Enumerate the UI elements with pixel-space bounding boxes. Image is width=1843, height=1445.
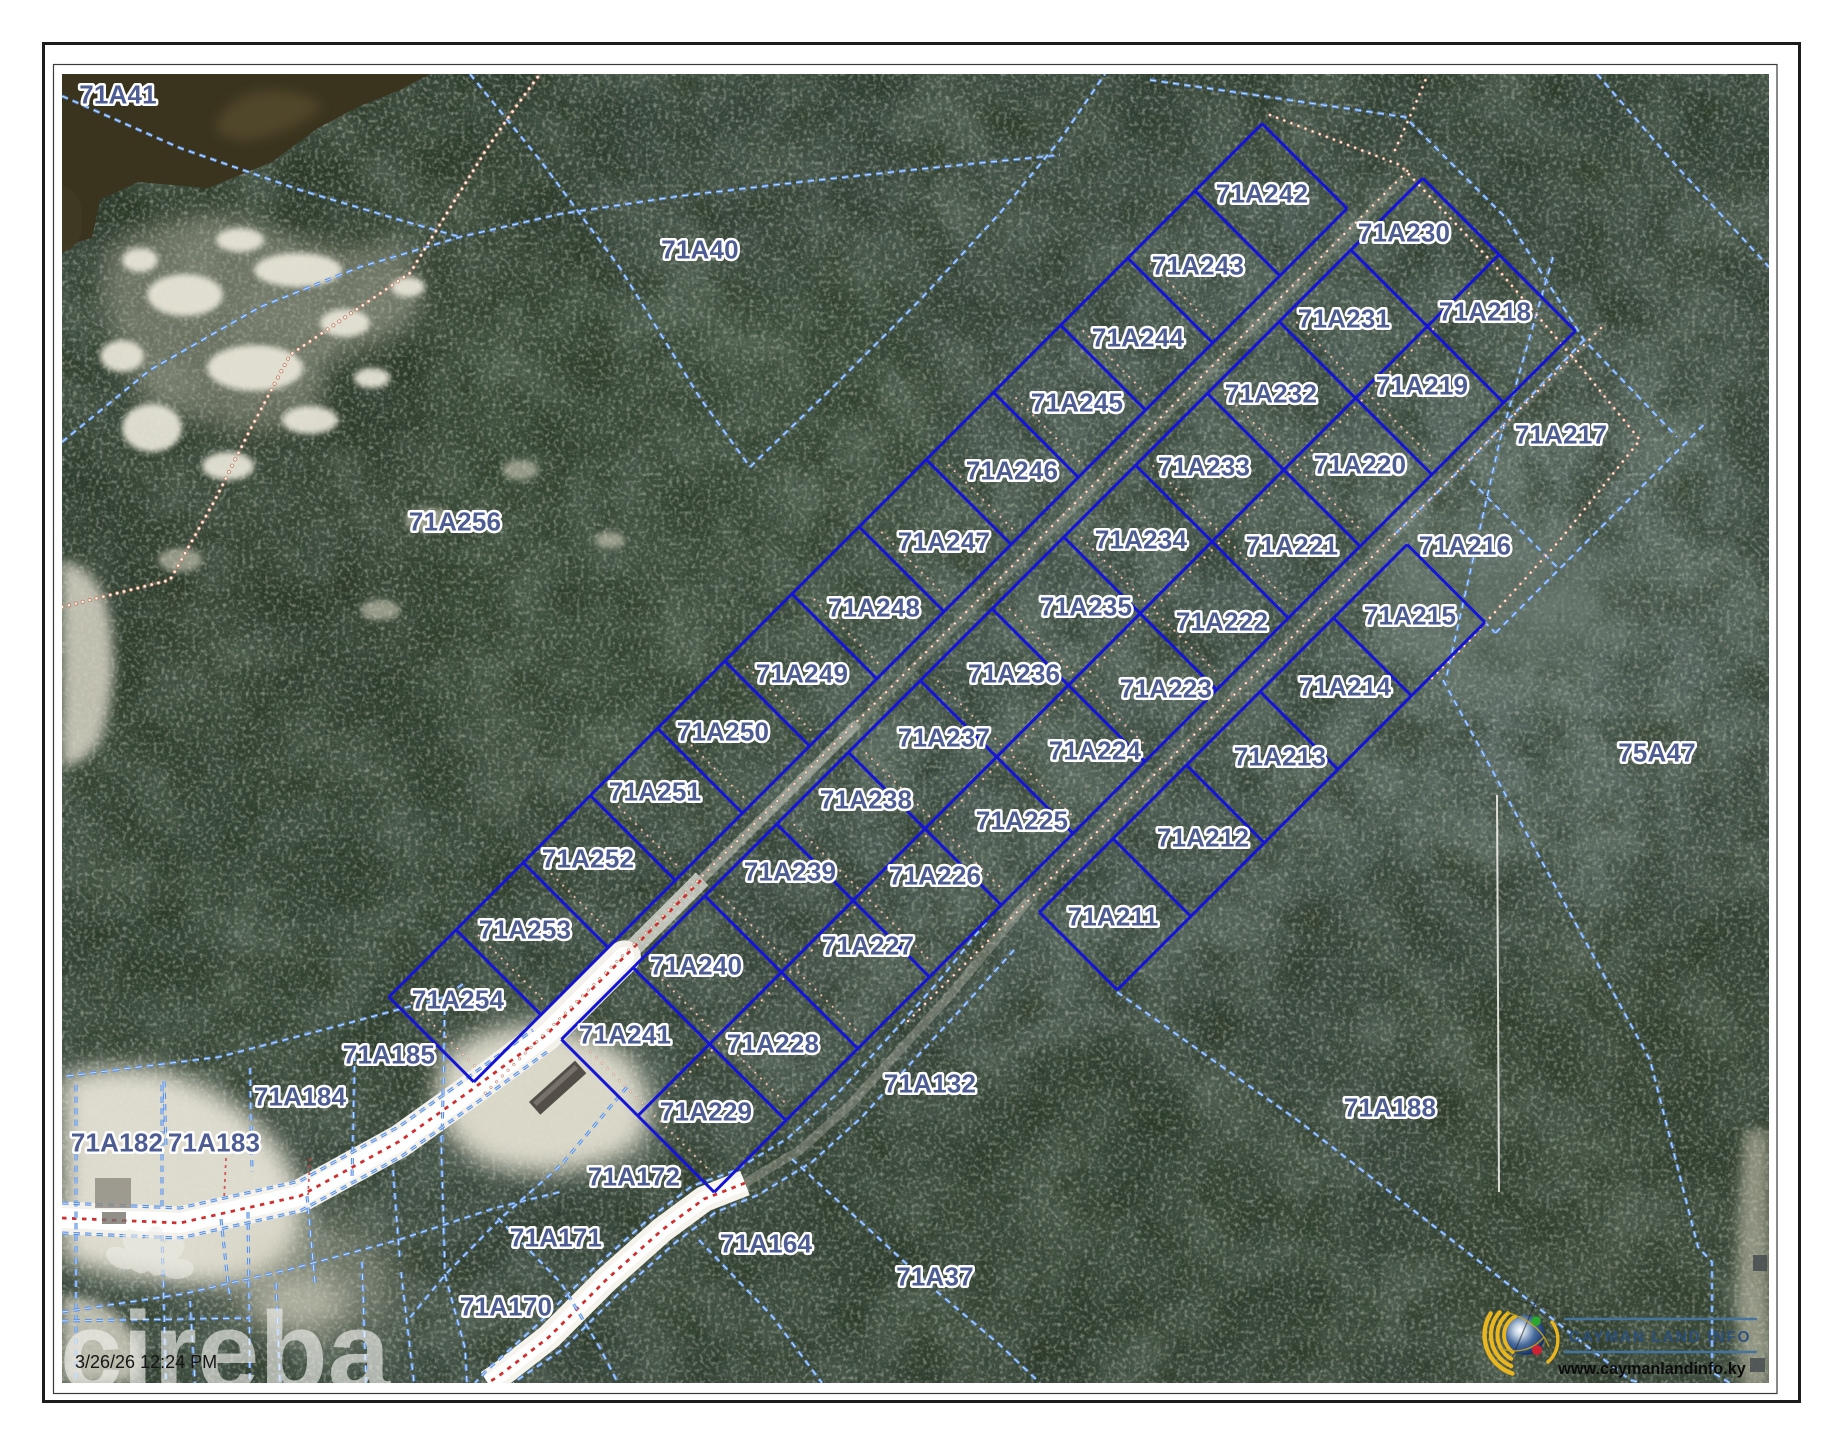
svg-text:71A185: 71A185 [343, 1039, 435, 1069]
svg-text:71A216: 71A216 [1419, 530, 1511, 560]
svg-text:71A251: 71A251 [609, 776, 701, 806]
svg-text:71A233: 71A233 [1158, 451, 1250, 481]
svg-text:71A230: 71A230 [1358, 217, 1450, 247]
svg-text:71A252: 71A252 [542, 843, 634, 873]
svg-text:71A229: 71A229 [660, 1096, 752, 1126]
svg-text:71A242: 71A242 [1216, 178, 1308, 208]
svg-text:71A213: 71A213 [1234, 741, 1326, 771]
svg-text:CAYMAN LAND INFO: CAYMAN LAND INFO [1569, 1329, 1752, 1346]
svg-text:71A132: 71A132 [884, 1068, 976, 1098]
svg-text:71A172: 71A172 [588, 1161, 680, 1191]
svg-text:71A41: 71A41 [79, 79, 157, 109]
svg-text:71A224: 71A224 [1049, 735, 1142, 765]
svg-text:71A219: 71A219 [1376, 370, 1468, 400]
svg-text:71A215: 71A215 [1364, 600, 1456, 630]
svg-text:71A226: 71A226 [889, 860, 981, 890]
svg-text:71A183: 71A183 [168, 1127, 260, 1157]
svg-text:71A248: 71A248 [828, 592, 920, 622]
svg-text:71A164: 71A164 [720, 1228, 813, 1258]
svg-text:71A217: 71A217 [1515, 419, 1607, 449]
svg-text:71A170: 71A170 [460, 1291, 552, 1321]
svg-text:71A221: 71A221 [1246, 530, 1338, 560]
svg-text:71A243: 71A243 [1152, 250, 1244, 280]
svg-text:71A228: 71A228 [727, 1028, 819, 1058]
svg-text:71A246: 71A246 [966, 455, 1058, 485]
svg-text:71A227: 71A227 [822, 930, 914, 960]
svg-text:71A220: 71A220 [1314, 449, 1406, 479]
svg-text:71A182: 71A182 [71, 1127, 163, 1157]
svg-text:71A212: 71A212 [1157, 822, 1249, 852]
svg-text:71A214: 71A214 [1299, 671, 1392, 701]
svg-text:71A232: 71A232 [1225, 378, 1317, 408]
svg-text:71A245: 71A245 [1031, 387, 1123, 417]
svg-text:71A222: 71A222 [1176, 606, 1268, 636]
svg-text:71A236: 71A236 [968, 658, 1060, 688]
svg-text:71A223: 71A223 [1120, 673, 1212, 703]
svg-text:71A249: 71A249 [756, 658, 848, 688]
svg-text:71A254: 71A254 [412, 984, 505, 1014]
svg-text:71A234: 71A234 [1095, 524, 1188, 554]
svg-text:71A231: 71A231 [1298, 303, 1390, 333]
svg-text:71A211: 71A211 [1068, 901, 1159, 931]
svg-text:www.caymanlandinfo.ky: www.caymanlandinfo.ky [1557, 1360, 1745, 1378]
svg-text:71A237: 71A237 [898, 722, 990, 752]
svg-text:71A247: 71A247 [898, 526, 990, 556]
svg-text:71A171: 71A171 [510, 1222, 602, 1252]
svg-text:3/26/26 12:24 PM: 3/26/26 12:24 PM [75, 1352, 217, 1372]
svg-text:71A256: 71A256 [409, 506, 501, 536]
svg-text:71A238: 71A238 [820, 784, 912, 814]
svg-text:71A250: 71A250 [677, 716, 769, 746]
svg-text:71A244: 71A244 [1092, 322, 1185, 352]
svg-text:71A40: 71A40 [661, 234, 739, 264]
svg-text:71A184: 71A184 [254, 1081, 347, 1111]
svg-text:71A240: 71A240 [650, 950, 742, 980]
svg-text:71A235: 71A235 [1040, 591, 1132, 621]
svg-text:71A253: 71A253 [479, 914, 571, 944]
svg-text:71A239: 71A239 [744, 856, 836, 886]
svg-text:71A37: 71A37 [896, 1261, 974, 1291]
svg-text:71A225: 71A225 [976, 805, 1068, 835]
svg-text:71A188: 71A188 [1344, 1092, 1436, 1122]
svg-text:75A47: 75A47 [1618, 737, 1696, 767]
svg-text:71A241: 71A241 [579, 1019, 671, 1049]
svg-text:71A218: 71A218 [1439, 296, 1531, 326]
